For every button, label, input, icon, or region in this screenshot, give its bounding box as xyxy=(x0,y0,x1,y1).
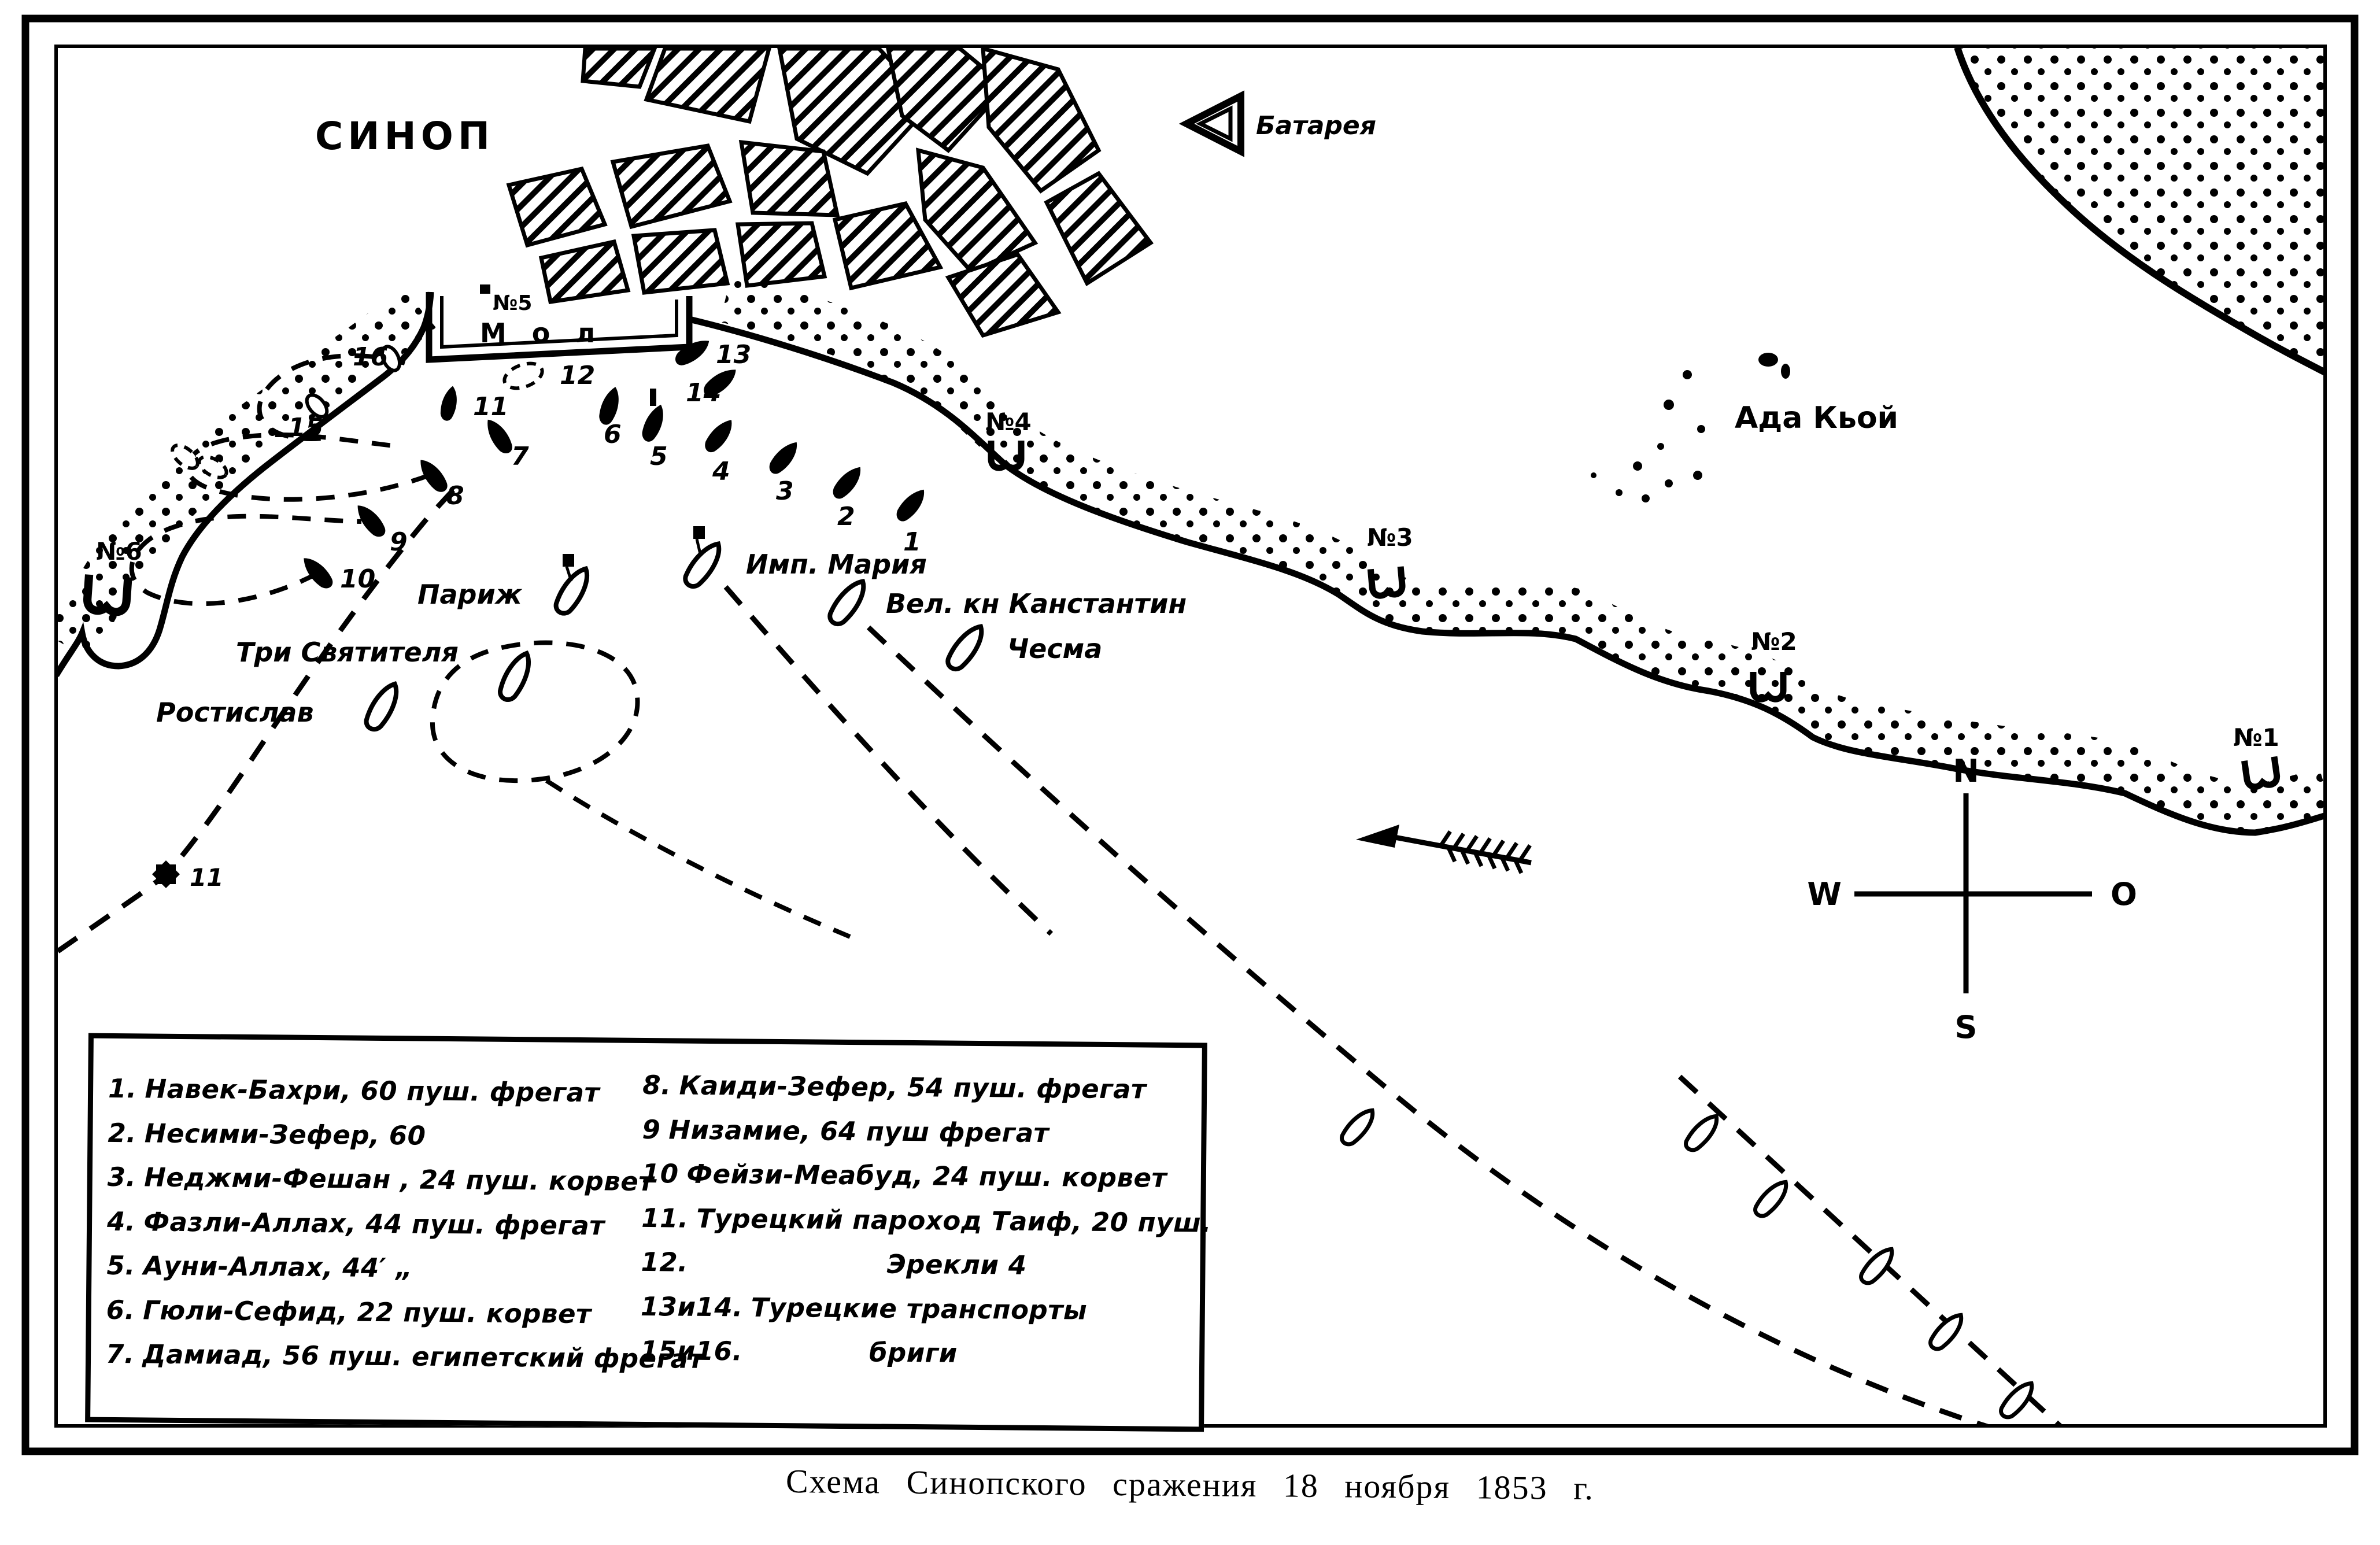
legend-text: Турецкий пароход Таиф, 20 пуш. xyxy=(696,1203,1211,1238)
city-block xyxy=(738,223,825,286)
legend-text: Несими-Зефер, 60 xyxy=(145,1118,426,1151)
city-block xyxy=(613,146,730,227)
russian-ship-chesma xyxy=(944,621,988,674)
russian-ship-paris xyxy=(552,564,594,617)
legend-row: 12.Эрекли 4 xyxy=(641,1248,1184,1281)
battery-label-3: №3 xyxy=(1367,523,1413,552)
city-block xyxy=(983,49,1099,191)
track-loop-paris xyxy=(433,642,638,781)
russian-ship-maria xyxy=(681,538,726,591)
turkish-ship-labels: 1 2 3 4 5 6 7 8 9 10 11 12 13 14 15 16 1… xyxy=(190,340,921,892)
ship-outline xyxy=(1927,1310,1967,1353)
legend-text: Фазли-Аллах, 44 пуш. фрегат xyxy=(143,1206,605,1241)
legend-num: 3. xyxy=(108,1163,136,1192)
num-10: 10 xyxy=(340,564,375,594)
transport-12-icon xyxy=(501,359,546,393)
city-block xyxy=(509,169,605,245)
legend-row: 3.Неджми-Фешан , 24 пуш. корвет xyxy=(108,1163,616,1196)
legend-text: Турецкие транспорты xyxy=(751,1292,1088,1325)
russian-ship-rostislav xyxy=(363,679,403,733)
city-blocks xyxy=(509,49,1151,335)
city-block xyxy=(741,142,837,215)
city-block xyxy=(646,49,769,121)
village-ada-kioy: Ада Кьой xyxy=(1591,353,1898,502)
compass-south-label: S xyxy=(1955,1009,1978,1045)
legend-num: 9 xyxy=(642,1115,660,1144)
num-4: 4 xyxy=(712,457,730,486)
num-16: 16 xyxy=(353,342,388,372)
ship-outline xyxy=(1339,1105,1379,1148)
legend-row: 9Низамие, 64 пуш фрегат xyxy=(642,1115,1185,1148)
label-rostislav: Ростислав xyxy=(156,697,314,728)
compass-cross xyxy=(1854,793,2092,993)
num-3: 3 xyxy=(776,476,794,506)
legend-text: Каиди-Зефер, 54 пуш. фрегат xyxy=(679,1070,1146,1104)
legend-row: 6.Гюли-Сефид, 22 пуш. корвет xyxy=(106,1295,615,1328)
legend-column-left: 1.Навек-Бахри, 60 пуш. фрегат 2.Несими-З… xyxy=(106,1074,618,1388)
legend-text: Навек-Бахри, 60 пуш. фрегат xyxy=(145,1073,600,1108)
compass-north-label: N xyxy=(1953,753,1979,789)
legend-num: 13и14. xyxy=(641,1292,743,1321)
legend-row: 5.Ауни-Аллах, 44′ „ xyxy=(106,1251,615,1284)
battery-label-5: №5 xyxy=(493,291,532,315)
legend-text: Низамие, 64 пуш фрегат xyxy=(668,1114,1049,1148)
num-11: 11 xyxy=(473,392,508,422)
legend-num: 4. xyxy=(107,1207,136,1236)
num-11-escaped: 11 xyxy=(190,863,223,892)
turkish-ship-13 xyxy=(672,334,714,369)
legend-row: 10Фейзи-Меабуд, 24 пуш. корвет xyxy=(642,1159,1185,1193)
shore-shading xyxy=(69,298,2326,808)
compass-west-label: W xyxy=(1807,876,1842,912)
num-5: 5 xyxy=(650,442,668,471)
city-label: СИНОП xyxy=(315,114,494,158)
flag-paris xyxy=(563,554,574,567)
city-block xyxy=(634,230,727,293)
mole-label: М о л xyxy=(480,317,603,349)
land-northeast xyxy=(1957,47,2326,373)
legend-num: 10 xyxy=(642,1159,679,1188)
num-7: 7 xyxy=(511,442,529,471)
legend-row: 13и14.Турецкие транспорты xyxy=(641,1292,1184,1325)
legend-num: 6. xyxy=(106,1295,135,1324)
outbound-squadron xyxy=(1339,1105,2038,1421)
turkish-ship-1 xyxy=(893,484,930,525)
label-tri-svyatitelya: Три Святителя xyxy=(236,637,459,668)
track-maria xyxy=(726,587,1051,934)
legend-row: 2.Несими-Зефер, 60 xyxy=(108,1118,616,1151)
turkish-ship-10 xyxy=(298,553,337,592)
turkish-ship-11-taif xyxy=(439,385,460,422)
ship-outline xyxy=(1683,1111,1723,1154)
battery-label-4: №4 xyxy=(985,408,1032,436)
fort-icon-1 xyxy=(2244,757,2278,788)
compass-east-label: O xyxy=(2111,876,2137,912)
turkish-ship-2 xyxy=(829,461,866,502)
city-block xyxy=(1047,173,1151,283)
legend-num: 1. xyxy=(108,1074,137,1103)
village-label: Ада Кьой xyxy=(1735,401,1898,435)
label-konstantin: Вел. кн Канстантин xyxy=(886,588,1187,619)
legend-num: 7. xyxy=(106,1340,135,1369)
num-2: 2 xyxy=(837,502,855,531)
legend-text: Фейзи-Меабуд, 24 пуш. корвет xyxy=(686,1159,1167,1193)
legend-text: Эрекли 4 xyxy=(887,1249,1027,1281)
battery-legend-label: Батарея xyxy=(1256,111,1376,141)
turkish-ship-4 xyxy=(701,415,738,456)
city-block xyxy=(583,49,655,87)
num-13: 13 xyxy=(716,340,751,369)
turkish-ship-9 xyxy=(351,500,389,540)
legend-num: 5. xyxy=(106,1251,135,1280)
legend-row: 15и16.бриги xyxy=(640,1336,1184,1370)
ship-outline xyxy=(1752,1177,1792,1220)
legend-row: 7.Дамиад, 56 пуш. египетский фрегат xyxy=(106,1340,615,1373)
steamer-taif-escaped-icon xyxy=(152,860,180,888)
num-9: 9 xyxy=(390,527,408,557)
legend-num: 15и16. xyxy=(640,1336,742,1366)
village-icon xyxy=(1758,353,1778,367)
num-8: 8 xyxy=(446,481,464,511)
sinop-battle-map: N S O W xyxy=(0,0,2380,1545)
legend-text: бриги xyxy=(869,1337,958,1368)
track-loop-exit xyxy=(546,781,850,937)
russian-ship-tri-svyatitelya xyxy=(497,649,535,703)
label-maria: Имп. Мария xyxy=(746,549,927,580)
city-block xyxy=(541,242,628,302)
flag-maria-mast xyxy=(697,539,701,556)
num-15: 15 xyxy=(288,413,323,442)
battery-label-2: №2 xyxy=(1751,627,1797,656)
label-chesma: Чесма xyxy=(1007,633,1102,664)
battery5-icon xyxy=(480,284,490,294)
compass-rose: N S O W xyxy=(1807,753,2137,1045)
flag-maria xyxy=(693,526,705,539)
wind-arrow-head xyxy=(1356,825,1399,848)
legend-row: 1.Навек-Бахри, 60 пуш. фрегат xyxy=(108,1074,617,1107)
wind-arrow xyxy=(1356,825,1531,873)
ship-outline xyxy=(1858,1244,1898,1287)
land-northeast-shading xyxy=(1957,47,2326,373)
label-paris: Париж xyxy=(417,579,523,610)
legend-text: Дамиад, 56 пуш. египетский фрегат xyxy=(142,1339,704,1374)
num-1: 1 xyxy=(903,527,921,557)
legend-text: Неджми-Фешан , 24 пуш. корвет xyxy=(144,1162,654,1197)
num-6: 6 xyxy=(604,420,622,449)
legend-num: 8. xyxy=(642,1071,671,1100)
turkish-ship-3 xyxy=(766,437,803,478)
turkish-ship-5 xyxy=(640,402,668,444)
legend-text: Ауни-Аллах, 44′ „ xyxy=(143,1250,413,1283)
legend-num: 2. xyxy=(108,1118,136,1147)
shore-dots-east xyxy=(726,298,2326,808)
battery-triangle-icon xyxy=(1187,96,1241,151)
turkish-ship-5-mast xyxy=(650,389,656,406)
num-14: 14 xyxy=(686,378,721,408)
battery-legend: Батарея xyxy=(1187,96,1376,151)
legend-num: 11. xyxy=(641,1203,689,1232)
legend-row: 8.Каиди-Зефер, 54 пуш. фрегат xyxy=(642,1071,1186,1104)
russian-ship-konstantin xyxy=(826,576,870,629)
num-12: 12 xyxy=(560,361,595,390)
track-beached-south xyxy=(132,516,361,604)
legend-row: 11.Турецкий пароход Таиф, 20 пуш. xyxy=(641,1203,1185,1237)
legend-column-right: 8.Каиди-Зефер, 54 пуш. фрегат 9Низамие, … xyxy=(640,1071,1187,1385)
legend-text: Гюли-Сефид, 22 пуш. корвет xyxy=(143,1295,592,1329)
village-icon xyxy=(1781,364,1790,379)
battery-label-6: №6 xyxy=(96,537,142,565)
ship-legend-box: 1.Навек-Бахри, 60 пуш. фрегат 2.Несими-З… xyxy=(85,1033,1207,1432)
village-dots xyxy=(1591,370,1705,502)
legend-num: 12. xyxy=(641,1248,688,1277)
battery-label-1: №1 xyxy=(2233,723,2279,752)
legend-row: 4.Фазли-Аллах, 44 пуш. фрегат xyxy=(107,1207,616,1240)
